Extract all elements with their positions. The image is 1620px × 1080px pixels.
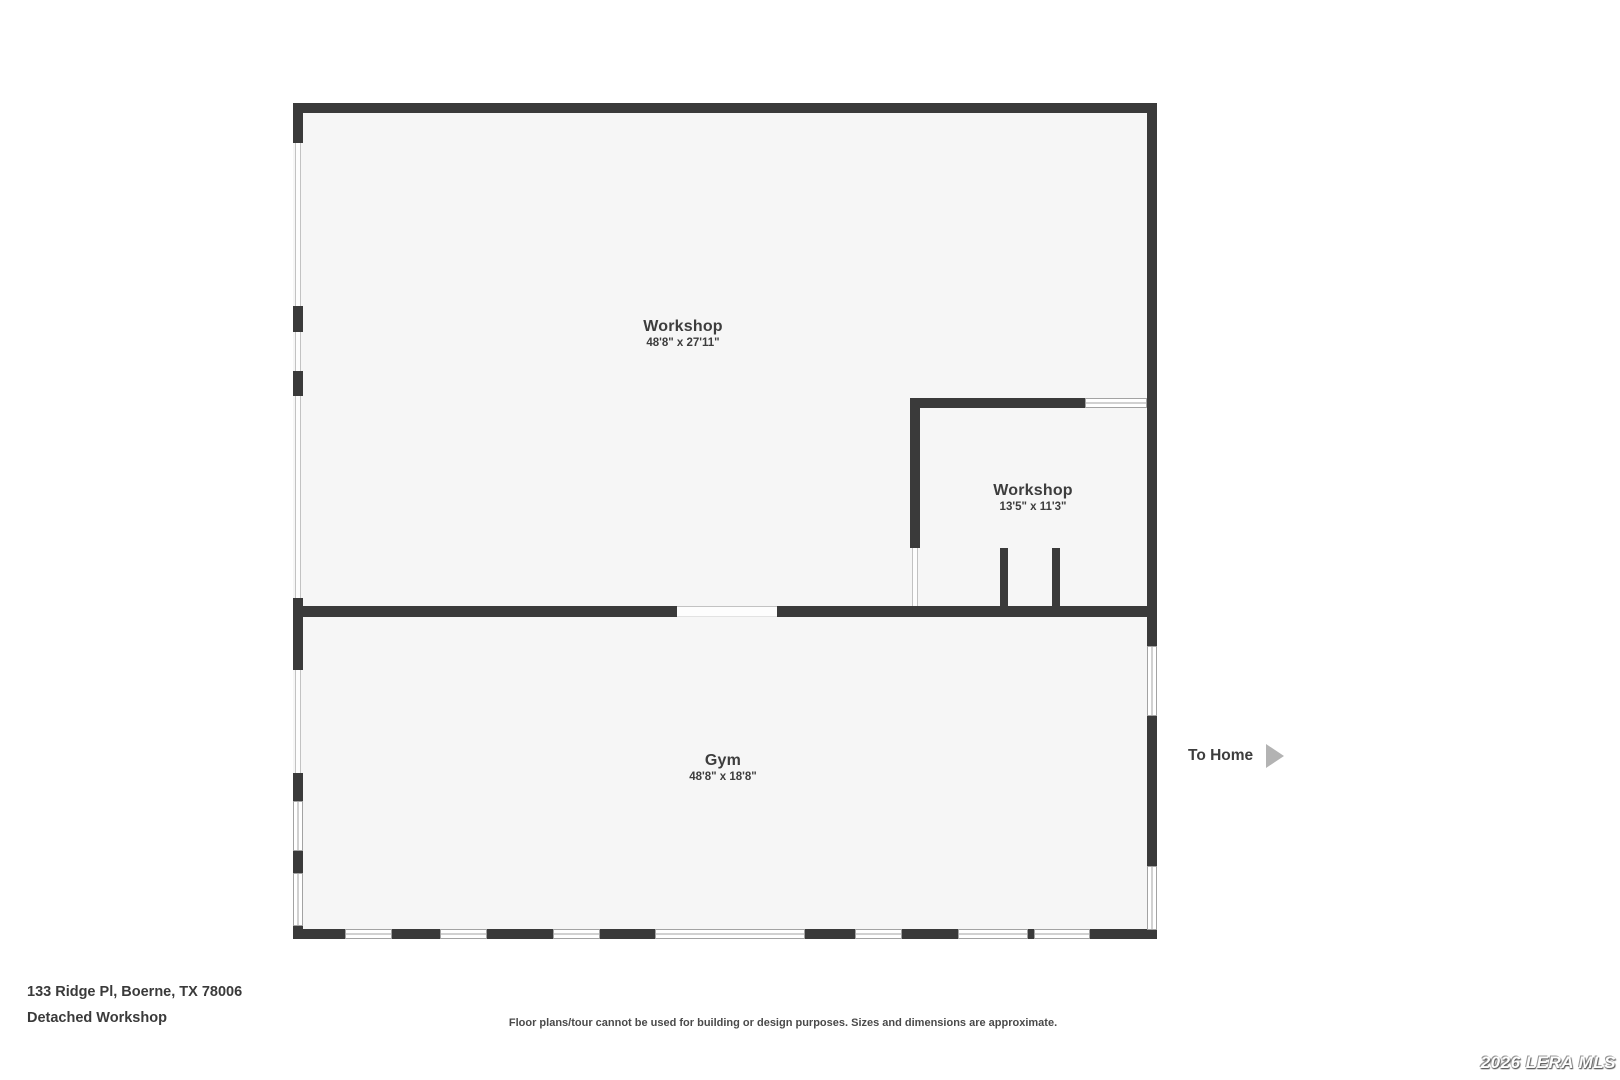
wall-left-seg-7 [293,926,303,939]
wall-right [1147,103,1157,939]
opening-small-workshop-left [912,548,918,606]
wall-small-workshop-left [910,398,920,548]
window-left-2 [293,873,303,926]
arrow-right-icon [1266,744,1284,768]
room-dims: 48'8" x 27'11" [543,337,823,349]
disclaimer-text: Floor plans/tour cannot be used for buil… [398,1017,1168,1029]
wall-divider-left [293,606,677,617]
mls-watermark: 2026 LERA MLS [1316,1053,1616,1073]
opening-left-3 [295,396,301,598]
window-bottom-1 [345,929,392,939]
room-label-gym: Gym 48'8" x 18'8" [583,752,863,783]
window-bottom-4 [655,929,805,939]
room-dims: 13'5" x 11'3" [913,501,1153,513]
opening-divider [677,606,777,617]
to-home-label: To Home [1188,747,1253,765]
room-dims: 48'8" x 18'8" [583,771,863,783]
wall-top [293,103,1157,113]
building-floor [293,103,1157,939]
wall-left-seg-6 [293,851,303,873]
window-right-2 [1147,866,1157,930]
wall-stub-2 [1052,548,1060,606]
wall-stub-1 [1000,548,1008,606]
opening-left-1 [295,143,301,306]
window-small-workshop-top [1085,398,1147,408]
wall-left-seg-3 [293,371,303,396]
opening-left-4 [295,670,301,773]
wall-divider-right [777,606,1157,617]
wall-left-seg-5 [293,773,303,801]
room-label-workshop-main: Workshop 48'8" x 27'11" [543,318,823,349]
room-name: Workshop [913,482,1153,500]
to-home-button[interactable]: To Home [1188,744,1284,768]
opening-left-2 [295,332,301,371]
window-bottom-6 [958,929,1028,939]
room-name: Gym [583,752,863,770]
window-bottom-7 [1034,929,1090,939]
property-address: 133 Ridge Pl, Boerne, TX 78006 [27,984,242,1000]
room-label-workshop-small: Workshop 13'5" x 11'3" [913,482,1153,513]
plan-title: Detached Workshop [27,1010,167,1026]
window-left-1 [293,801,303,851]
wall-left-seg-1 [293,103,303,143]
wall-left-seg-2 [293,306,303,332]
window-right-1 [1147,646,1157,716]
wall-small-workshop-top [910,398,1085,408]
window-bottom-2 [440,929,487,939]
window-bottom-3 [553,929,600,939]
room-name: Workshop [543,318,823,336]
window-bottom-5 [855,929,902,939]
